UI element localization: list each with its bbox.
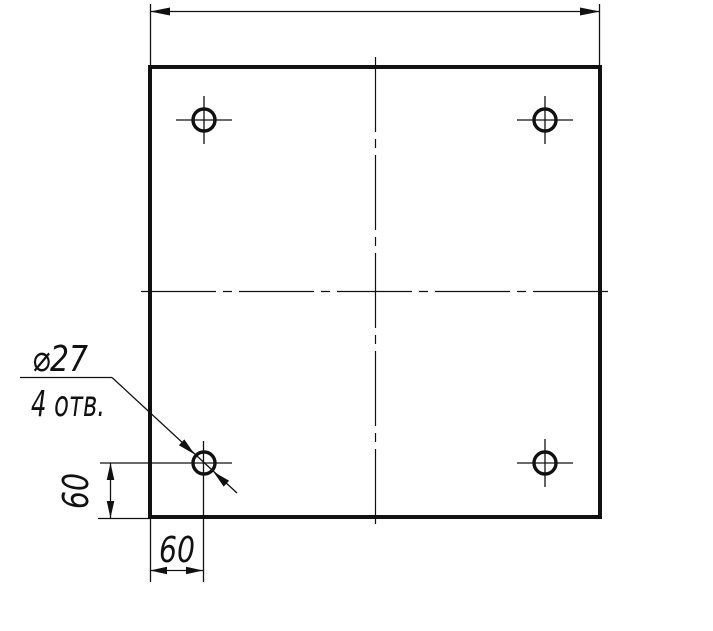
hole-top-right: [517, 96, 573, 144]
technical-drawing-svg: ⌀27 4 отв. 60 60: [0, 0, 713, 631]
offset-y-arrow-top: [107, 463, 115, 480]
overall-dim-arrow-right: [580, 8, 600, 16]
callout-diameter-text: ⌀27: [32, 339, 88, 380]
offset-y-dimension: 60: [56, 463, 150, 519]
hole-callout: ⌀27 4 отв.: [20, 339, 237, 493]
offset-y-arrow-bottom: [107, 501, 115, 518]
drawing-canvas: ⌀27 4 отв. 60 60: [0, 0, 713, 631]
overall-width-dimension: [150, 4, 600, 65]
offset-x-dimension: 60: [150, 519, 203, 582]
callout-count-text: 4 отв.: [31, 384, 105, 425]
offset-y-value: 60: [56, 473, 97, 509]
offset-x-value: 60: [159, 530, 195, 571]
overall-dim-arrow-left: [150, 8, 170, 16]
hole-bottom-right: [517, 439, 573, 487]
hole-top-left: [176, 96, 232, 144]
